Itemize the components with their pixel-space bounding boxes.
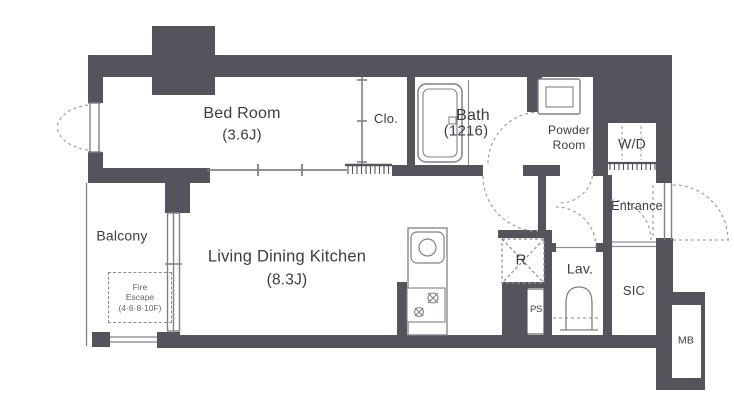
wall-ldk-window-top-block [165,183,190,213]
sic-label: SIC [623,283,645,299]
wall-balcony-corner-block [92,332,110,347]
closet-label: Clo. [374,111,398,127]
kitchen-sink-icon [411,232,444,263]
powder-room-label-line1: Powder [548,123,590,138]
fire-escape-box: Fire Escape (4·6·8·10F) [108,272,172,323]
bedroom-size-label: (3.6J) [222,127,262,146]
entrance-label: Entrance [611,199,663,215]
stove-icon [407,288,445,322]
wall-top [88,55,672,77]
wall-mid-band-a [392,165,483,176]
ldk-label: Living Dining Kitchen [208,247,366,268]
mb-label: MB [678,334,694,347]
balcony-label: Balcony [96,227,147,245]
kitchen-counter [407,228,447,335]
wall-right-lower [656,238,673,390]
wall-closet-bath [407,77,415,165]
wall-fridge-top [498,230,552,238]
ps-label: PS [530,304,542,316]
lav-label: Lav. [567,260,593,278]
wall-powder-right [593,77,608,176]
wall-bedroom-balcony [88,168,210,183]
wall-lav-door-stub-left [546,243,556,252]
wd-label: W/D [618,135,646,153]
fire-escape-line1: Fire [133,282,148,293]
powder-sink-icon [538,79,580,114]
fridge-label: R [515,252,526,271]
bedroom-label: Bed Room [203,104,280,124]
wall-ldk-window-bottom-block [157,332,180,348]
wall-right-upper [656,123,672,183]
fire-escape-line3: (4·6·8·10F) [119,303,162,314]
wall-kitchen-stub [397,282,407,335]
floor-plan: Bed Room (3.6J) Clo. Bath (1216) Powder … [0,0,734,414]
fire-escape-line2: Escape [126,292,154,303]
ldk-size-label: (8.3J) [267,270,308,289]
powder-room-label-line2: Room [553,138,586,153]
wall-left-upper [88,55,103,103]
wall-mid-band-b [523,165,560,176]
bath-size-label: (1216) [444,123,489,142]
wall-hall [538,175,546,232]
powder-room-label: Powder Room [548,123,590,153]
wall-ps-chunk [502,282,528,335]
wall-bottom [180,335,658,348]
